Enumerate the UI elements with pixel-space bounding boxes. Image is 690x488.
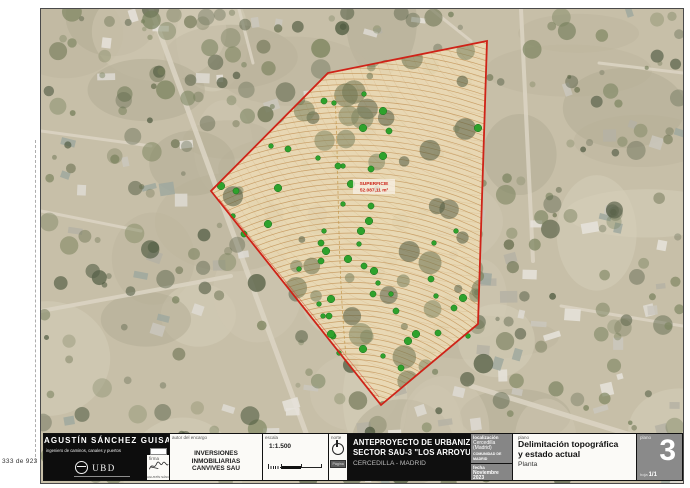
tree-marker: [274, 184, 282, 192]
tree-marker: [459, 294, 467, 302]
location-line3: COMUNIDAD DE MADRID: [473, 452, 510, 462]
location-date-column: localización Cercedilla (Madrid) COMUNID…: [471, 434, 513, 480]
client-name-line2: CANVIVES SAU: [170, 465, 262, 473]
designer-name: AGUSTÍN SÁNCHEZ GUISADO: [44, 434, 169, 447]
tree-marker: [370, 291, 376, 297]
tree-marker: [393, 308, 399, 314]
tree-marker: [451, 305, 457, 311]
ubd-emblem-icon: [75, 461, 88, 474]
tree-marker: [322, 247, 330, 255]
tree-marker: [379, 152, 387, 160]
registration-chip: [150, 448, 167, 455]
tree-marker: [269, 144, 274, 149]
superficie-value: 52.087,11 m²: [360, 188, 389, 194]
tree-marker: [327, 330, 335, 338]
tree-marker: [361, 263, 367, 269]
tree-marker: [233, 188, 239, 194]
tree-marker: [264, 220, 272, 228]
page-stamp: Página: [330, 460, 346, 468]
tree-marker: [322, 229, 327, 234]
client-box: autor del encargo INVERSIONES INMOBILIAR…: [170, 434, 263, 480]
ubd-subtext: [74, 476, 130, 478]
tree-marker: [357, 227, 365, 235]
tree-marker: [326, 313, 332, 319]
project-line1: ANTEPROYECTO DE URBANIZACION: [353, 438, 465, 448]
tree-marker: [359, 345, 367, 353]
project-line2: SECTOR SAU-3 "LOS ARROYUELOS": [353, 448, 465, 458]
superficie-label: SUPERFICIE: [360, 181, 390, 187]
designer-profession: ingeniero de caminos, canales y puertos: [44, 447, 169, 455]
hoja-value: 1/1: [649, 472, 657, 478]
sheet-number: 3: [659, 436, 676, 466]
tree-marker: [359, 124, 367, 132]
tree-marker: [474, 124, 482, 132]
project-title-box: ANTEPROYECTO DE URBANIZACION SECTOR SAU-…: [348, 434, 471, 480]
tree-marker: [428, 276, 434, 282]
tree-marker: [335, 163, 341, 169]
tree-marker: [404, 337, 412, 345]
tree-marker: [297, 267, 302, 272]
tree-marker: [370, 267, 378, 275]
tree-marker: [317, 302, 322, 307]
scale-value: 1:1.500: [263, 440, 328, 450]
north-box: norte Página: [329, 434, 348, 480]
tree-marker: [386, 128, 392, 134]
tree-marker: [318, 240, 324, 246]
title-block: AGUSTÍN SÁNCHEZ GUISADO ingeniero de cam…: [43, 433, 683, 481]
tree-marker: [321, 314, 326, 319]
signature: [148, 460, 169, 472]
project-line3: CERCEDILLA - MADRID: [353, 459, 465, 468]
sheet-title-line2: y estado actual: [513, 450, 636, 460]
tree-marker: [365, 217, 373, 225]
sheet-subtitle: Planta: [513, 461, 636, 468]
aerial-map: SUPERFICIE52.087,11 m²: [41, 9, 683, 483]
ubd-logo: UBD: [44, 455, 147, 480]
plan-sheet: 333 de 923 SUPERFICIE52.087,11 m² AGUSTÍ…: [0, 0, 690, 488]
client-name-line1: INVERSIONES INMOBILIARIAS: [170, 450, 262, 465]
tree-marker: [344, 255, 352, 263]
date-box: fecha Noviembre 2023: [471, 463, 512, 480]
aerial-photo-frame: SUPERFICIE52.087,11 m²: [40, 8, 684, 484]
tree-marker: [379, 107, 387, 115]
north-label: norte: [329, 434, 347, 440]
tree-marker: [341, 202, 346, 207]
scale-box: escala 1:1.500: [263, 434, 329, 480]
location-box: localización Cercedilla (Madrid) COMUNID…: [471, 434, 512, 463]
hoja-label: hoja: [640, 472, 648, 477]
margin-fine-print: [35, 140, 36, 462]
tree-marker: [362, 92, 367, 97]
tree-marker: [316, 156, 321, 161]
tree-marker: [357, 242, 362, 247]
tree-marker: [454, 229, 459, 234]
tree-marker: [432, 241, 437, 246]
designer-block: AGUSTÍN SÁNCHEZ GUISADO ingeniero de cam…: [44, 434, 170, 480]
tree-marker: [435, 330, 441, 336]
tree-marker: [327, 295, 335, 303]
sheet-title-box: plano Delimitación topográfica y estado …: [513, 434, 637, 480]
tree-marker: [376, 281, 381, 286]
scale-bar: [268, 464, 322, 471]
client-label: autor del encargo: [170, 434, 262, 440]
tree-marker: [332, 101, 337, 106]
tree-marker: [321, 98, 327, 104]
tree-marker: [368, 203, 374, 209]
tree-marker: [318, 258, 324, 264]
tree-marker: [285, 146, 291, 152]
north-arrow-icon: [332, 443, 344, 455]
signature-box: firma AGUSTÍN SÁNCHEZ GUISADO: [147, 455, 169, 480]
page-indicator: 333 de 923: [2, 458, 38, 465]
tree-marker: [412, 330, 420, 338]
tree-marker: [368, 166, 374, 172]
sheet-number-box: plano 3 hoja1/1: [637, 434, 682, 480]
tree-marker: [381, 354, 386, 359]
tree-marker: [434, 294, 439, 299]
tree-marker: [389, 292, 394, 297]
date-value: Noviembre 2023: [473, 471, 510, 480]
signature-caption: AGUSTÍN SÁNCHEZ GUISADO: [147, 475, 169, 479]
tree-marker: [398, 365, 404, 371]
